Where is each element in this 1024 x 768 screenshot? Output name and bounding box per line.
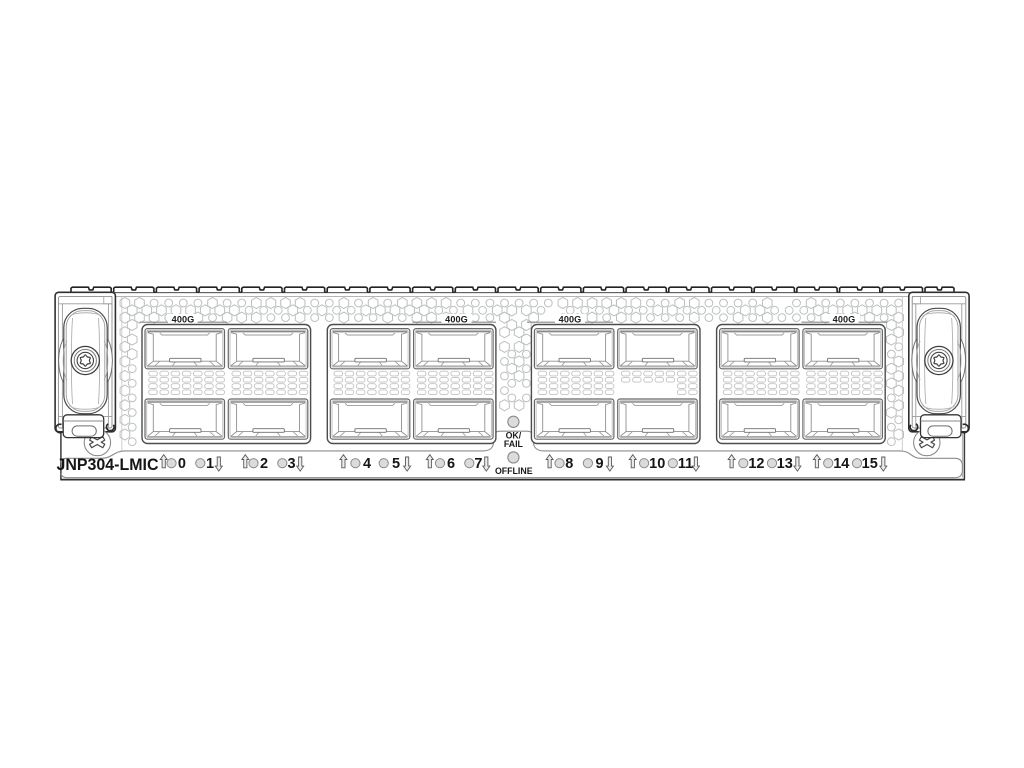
svg-text:2: 2 <box>260 456 268 472</box>
svg-text:5: 5 <box>392 456 400 472</box>
svg-text:3: 3 <box>287 456 295 472</box>
svg-text:12: 12 <box>748 456 764 472</box>
svg-text:8: 8 <box>565 456 573 472</box>
svg-text:400G: 400G <box>559 314 582 324</box>
svg-text:15: 15 <box>862 456 878 472</box>
svg-text:400G: 400G <box>833 314 856 324</box>
svg-text:7: 7 <box>474 456 482 472</box>
svg-text:11: 11 <box>678 456 693 472</box>
svg-text:10: 10 <box>649 456 665 472</box>
svg-text:JNP304-LMIC: JNP304-LMIC <box>57 456 159 474</box>
svg-text:FAIL: FAIL <box>504 439 524 449</box>
svg-text:4: 4 <box>363 456 371 472</box>
svg-text:6: 6 <box>447 456 455 472</box>
svg-text:OFFLINE: OFFLINE <box>495 466 533 476</box>
svg-text:14: 14 <box>833 456 849 472</box>
svg-text:13: 13 <box>777 456 793 472</box>
svg-text:0: 0 <box>178 456 186 472</box>
svg-text:400G: 400G <box>172 314 195 324</box>
svg-text:9: 9 <box>596 456 604 472</box>
svg-text:1: 1 <box>206 456 214 472</box>
svg-text:400G: 400G <box>445 314 468 324</box>
